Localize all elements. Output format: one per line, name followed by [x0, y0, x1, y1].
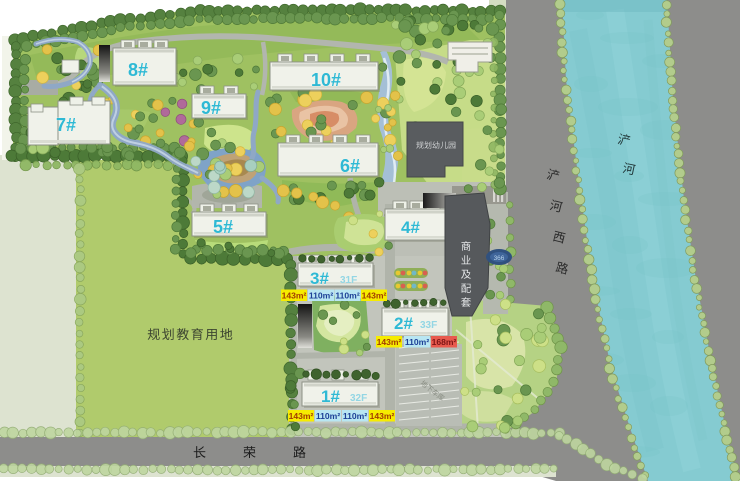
svg-text:2#: 2# [394, 314, 413, 333]
svg-text:143m²: 143m² [377, 337, 402, 347]
svg-text:6#: 6# [340, 156, 360, 176]
svg-text:110m²: 110m² [316, 411, 341, 421]
svg-text:366: 366 [494, 255, 505, 262]
svg-text:1#: 1# [321, 387, 340, 406]
svg-text:3#: 3# [310, 269, 329, 288]
svg-text:110m²: 110m² [309, 290, 334, 300]
svg-text:110m²: 110m² [343, 411, 368, 421]
svg-text:8#: 8# [128, 60, 148, 80]
svg-text:143m²: 143m² [282, 290, 307, 300]
svg-text:9#: 9# [201, 98, 221, 118]
svg-text:31F: 31F [340, 275, 357, 286]
svg-text:4#: 4# [401, 218, 420, 237]
svg-text:32F: 32F [350, 393, 367, 404]
svg-text:33F: 33F [420, 320, 437, 331]
svg-text:110m²: 110m² [335, 290, 360, 300]
svg-text:10#: 10# [311, 70, 341, 90]
svg-text:168m²: 168m² [432, 337, 457, 347]
svg-text:143m²: 143m² [370, 411, 395, 421]
svg-text:143m²: 143m² [362, 290, 387, 300]
svg-text:110m²: 110m² [405, 337, 430, 347]
svg-text:143m²: 143m² [289, 411, 314, 421]
svg-text:7#: 7# [56, 115, 76, 135]
svg-text:5#: 5# [213, 217, 233, 237]
